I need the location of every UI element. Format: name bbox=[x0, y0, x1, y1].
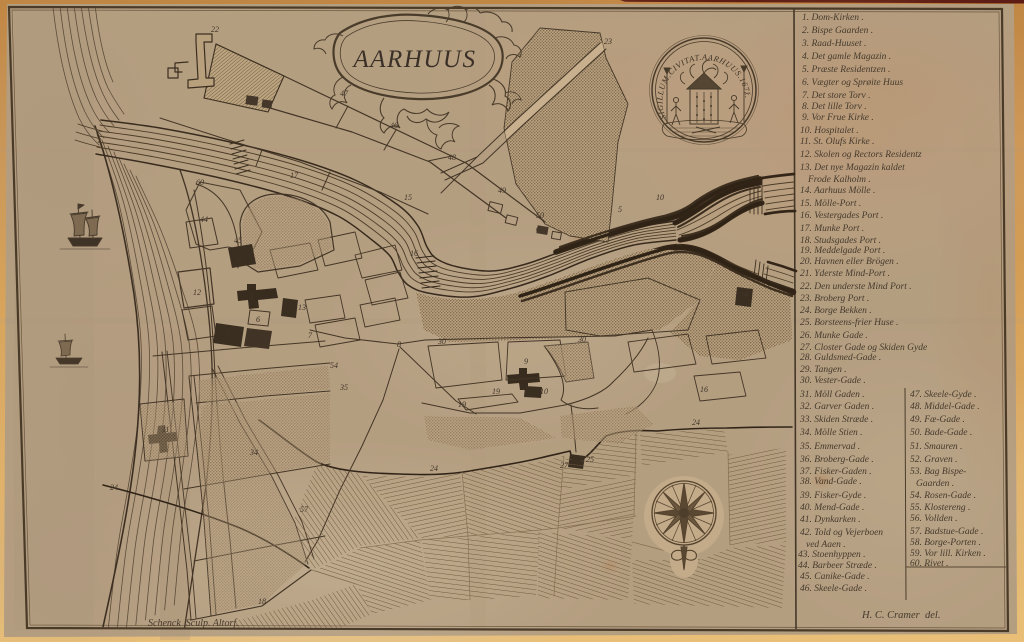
svg-text:Frode Kalholm .: Frode Kalholm . bbox=[807, 175, 871, 185]
svg-text:11. St. Olufs Kirke .: 11. St. Olufs Kirke . bbox=[800, 136, 875, 147]
svg-text:36. Broberg-Gade .: 36. Broberg-Gade . bbox=[799, 455, 874, 465]
svg-text:8. Det lille Torv .: 8. Det lille Torv . bbox=[802, 102, 867, 112]
svg-text:11: 11 bbox=[162, 425, 169, 434]
svg-text:17. Munke Port .: 17. Munke Port . bbox=[800, 224, 864, 234]
svg-text:44: 44 bbox=[200, 215, 208, 224]
svg-text:52. Graven .: 52. Graven . bbox=[910, 455, 958, 465]
svg-text:54: 54 bbox=[330, 361, 338, 370]
svg-text:1: 1 bbox=[250, 292, 254, 301]
svg-text:47: 47 bbox=[340, 89, 349, 98]
svg-text:9. Vor Frue Kirke .: 9. Vor Frue Kirke . bbox=[802, 113, 874, 123]
svg-text:10: 10 bbox=[540, 387, 548, 396]
svg-text:24: 24 bbox=[430, 464, 438, 473]
svg-text:10: 10 bbox=[656, 193, 664, 202]
svg-text:6. Vægter og Sprøite Huus: 6. Vægter og Sprøite Huus bbox=[802, 78, 903, 88]
svg-text:60. Rivet .: 60. Rivet . bbox=[910, 559, 949, 569]
svg-text:2: 2 bbox=[238, 253, 242, 262]
svg-text:27. Closter Gade og Skiden Gyd: 27. Closter Gade og Skiden Gyde bbox=[800, 343, 927, 353]
svg-text:50. Bade-Gade .: 50. Bade-Gade . bbox=[910, 428, 972, 438]
svg-text:16. Vestergades Port .: 16. Vestergades Port . bbox=[800, 211, 883, 221]
svg-text:48: 48 bbox=[448, 153, 456, 162]
svg-text:60: 60 bbox=[196, 178, 204, 187]
svg-text:13. Det nye Magazin kaldet: 13. Det nye Magazin kaldet bbox=[800, 163, 905, 173]
svg-text:6: 6 bbox=[256, 315, 260, 324]
svg-text:AARHUUS: AARHUUS bbox=[352, 46, 477, 73]
svg-text:53. Bag Bispe-: 53. Bag Bispe- bbox=[910, 467, 966, 477]
svg-text:42. Told og Vejerboen: 42. Told og Vejerboen bbox=[800, 528, 883, 538]
svg-text:9: 9 bbox=[524, 357, 528, 366]
svg-text:14: 14 bbox=[740, 290, 748, 299]
svg-text:26. Munke Gade .: 26. Munke Gade . bbox=[800, 331, 868, 341]
svg-text:58. Borge-Porten .: 58. Borge-Porten . bbox=[910, 538, 981, 548]
svg-text:30: 30 bbox=[437, 337, 446, 346]
svg-text:19: 19 bbox=[492, 387, 500, 396]
svg-text:46: 46 bbox=[390, 121, 398, 130]
svg-text:31. Möll Gaden .: 31. Möll Gaden . bbox=[799, 390, 865, 400]
svg-text:16: 16 bbox=[700, 385, 708, 394]
svg-text:57. Badstue-Gade .: 57. Badstue-Gade . bbox=[910, 527, 983, 537]
svg-text:27: 27 bbox=[560, 461, 569, 470]
svg-text:23: 23 bbox=[604, 37, 612, 46]
svg-text:44. Barbeer Stræde .: 44. Barbeer Stræde . bbox=[798, 561, 877, 571]
svg-text:43. Stoenhyppen .: 43. Stoenhyppen . bbox=[798, 550, 866, 560]
svg-text:7. Det store Torv .: 7. Det store Torv . bbox=[802, 91, 870, 101]
svg-text:19: 19 bbox=[458, 400, 466, 409]
svg-text:H. C. Cramer del.: H. C. Cramer del. bbox=[861, 610, 940, 621]
svg-text:24: 24 bbox=[110, 483, 118, 492]
svg-text:17: 17 bbox=[290, 171, 299, 180]
svg-text:56. Vollden .: 56. Vollden . bbox=[910, 514, 958, 524]
svg-text:22: 22 bbox=[211, 25, 219, 34]
svg-text:57: 57 bbox=[300, 505, 309, 514]
svg-text:34. Mölle Stien .: 34. Mölle Stien . bbox=[799, 428, 863, 438]
svg-text:41. Dynkarken .: 41. Dynkarken . bbox=[800, 515, 861, 525]
svg-text:40. Mend-Gade .: 40. Mend-Gade . bbox=[800, 503, 864, 513]
svg-text:8: 8 bbox=[397, 340, 401, 349]
svg-text:5: 5 bbox=[618, 205, 622, 214]
svg-text:46. Skeele-Gade .: 46. Skeele-Gade . bbox=[800, 584, 867, 594]
svg-text:13: 13 bbox=[298, 303, 306, 312]
svg-text:48. Middel-Gade .: 48. Middel-Gade . bbox=[910, 402, 980, 412]
svg-text:24: 24 bbox=[692, 418, 700, 427]
svg-text:3. Raad-Huuset .: 3. Raad-Huuset . bbox=[801, 39, 866, 49]
svg-text:55. Klostereng .: 55. Klostereng . bbox=[910, 503, 970, 513]
svg-text:ved Aaen .: ved Aaen . bbox=[806, 540, 846, 550]
svg-text:5: 5 bbox=[226, 329, 230, 338]
svg-text:30. Vester-Gade .: 30. Vester-Gade . bbox=[799, 376, 866, 386]
svg-text:2. Bispe Gaarden .: 2. Bispe Gaarden . bbox=[802, 26, 873, 36]
svg-text:59. Vor lill. Kirken .: 59. Vor lill. Kirken . bbox=[910, 549, 986, 559]
svg-text:25: 25 bbox=[586, 455, 594, 464]
svg-text:15. Mölle-Port .: 15. Mölle-Port . bbox=[800, 199, 861, 209]
svg-text:12. Skolen og Rectors Resident: 12. Skolen og Rectors Residentz bbox=[800, 150, 922, 160]
svg-text:45. Canike-Gade .: 45. Canike-Gade . bbox=[800, 572, 870, 582]
svg-text:20. Havnen eller Brögen .: 20. Havnen eller Brögen . bbox=[800, 257, 899, 267]
svg-text:49: 49 bbox=[498, 186, 506, 195]
svg-text:50: 50 bbox=[536, 211, 544, 220]
svg-text:16: 16 bbox=[410, 249, 418, 258]
svg-text:Gaarden .: Gaarden . bbox=[916, 479, 954, 489]
svg-text:Schenck Sculp. Altorf.: Schenck Sculp. Altorf. bbox=[148, 618, 239, 629]
svg-text:5. Præste Residentzen .: 5. Præste Residentzen . bbox=[802, 65, 890, 75]
svg-text:23. Broberg Port .: 23. Broberg Port . bbox=[800, 294, 869, 304]
svg-text:6: 6 bbox=[536, 225, 540, 234]
svg-text:24. Borge Bekken .: 24. Borge Bekken . bbox=[800, 306, 872, 316]
svg-text:4: 4 bbox=[250, 333, 254, 342]
svg-text:38. Vand-Gade .: 38. Vand-Gade . bbox=[799, 477, 862, 487]
svg-text:34: 34 bbox=[249, 448, 258, 457]
svg-text:21. Yderste Mind-Port .: 21. Yderste Mind-Port . bbox=[800, 269, 890, 279]
svg-text:12: 12 bbox=[193, 288, 201, 297]
svg-text:37. Fisker-Gaden .: 37. Fisker-Gaden . bbox=[799, 467, 872, 477]
svg-text:35: 35 bbox=[339, 383, 348, 392]
svg-text:35. Emmervad .: 35. Emmervad . bbox=[799, 442, 860, 452]
svg-text:45: 45 bbox=[234, 236, 242, 245]
svg-text:10. Hospitalet .: 10. Hospitalet . bbox=[800, 126, 859, 136]
svg-text:14. Aarhuus Mölle .: 14. Aarhuus Mölle . bbox=[800, 186, 875, 196]
svg-text:15: 15 bbox=[404, 193, 412, 202]
svg-text:49. Fæ-Gade .: 49. Fæ-Gade . bbox=[910, 415, 965, 425]
svg-text:25. Borsteens-frier Huse .: 25. Borsteens-frier Huse . bbox=[800, 317, 898, 328]
svg-text:28. Guldsmed-Gade .: 28. Guldsmed-Gade . bbox=[800, 353, 881, 363]
svg-text:47. Skeele-Gyde .: 47. Skeele-Gyde . bbox=[910, 390, 976, 400]
svg-text:29. Tangen .: 29. Tangen . bbox=[800, 365, 847, 375]
svg-text:30: 30 bbox=[577, 335, 586, 344]
svg-text:32. Garver Gaden .: 32. Garver Gaden . bbox=[799, 402, 874, 412]
svg-text:1. Dom-Kirken .: 1. Dom-Kirken . bbox=[802, 13, 864, 23]
svg-text:18: 18 bbox=[258, 597, 266, 606]
svg-text:51. Smauren .: 51. Smauren . bbox=[910, 442, 962, 452]
svg-text:39. Fisker-Gyde .: 39. Fisker-Gyde . bbox=[799, 491, 866, 501]
svg-text:19. Meddelgade Port .: 19. Meddelgade Port . bbox=[800, 246, 885, 256]
svg-text:33. Skiden Stræde .: 33. Skiden Stræde . bbox=[799, 415, 873, 425]
svg-text:22. Den underste Mind Port .: 22. Den underste Mind Port . bbox=[800, 282, 912, 292]
svg-text:4. Det gamle Magazin .: 4. Det gamle Magazin . bbox=[802, 52, 891, 62]
svg-text:18. Studsgades Port .: 18. Studsgades Port . bbox=[800, 236, 881, 246]
svg-text:54. Rosen-Gade .: 54. Rosen-Gade . bbox=[910, 491, 976, 501]
